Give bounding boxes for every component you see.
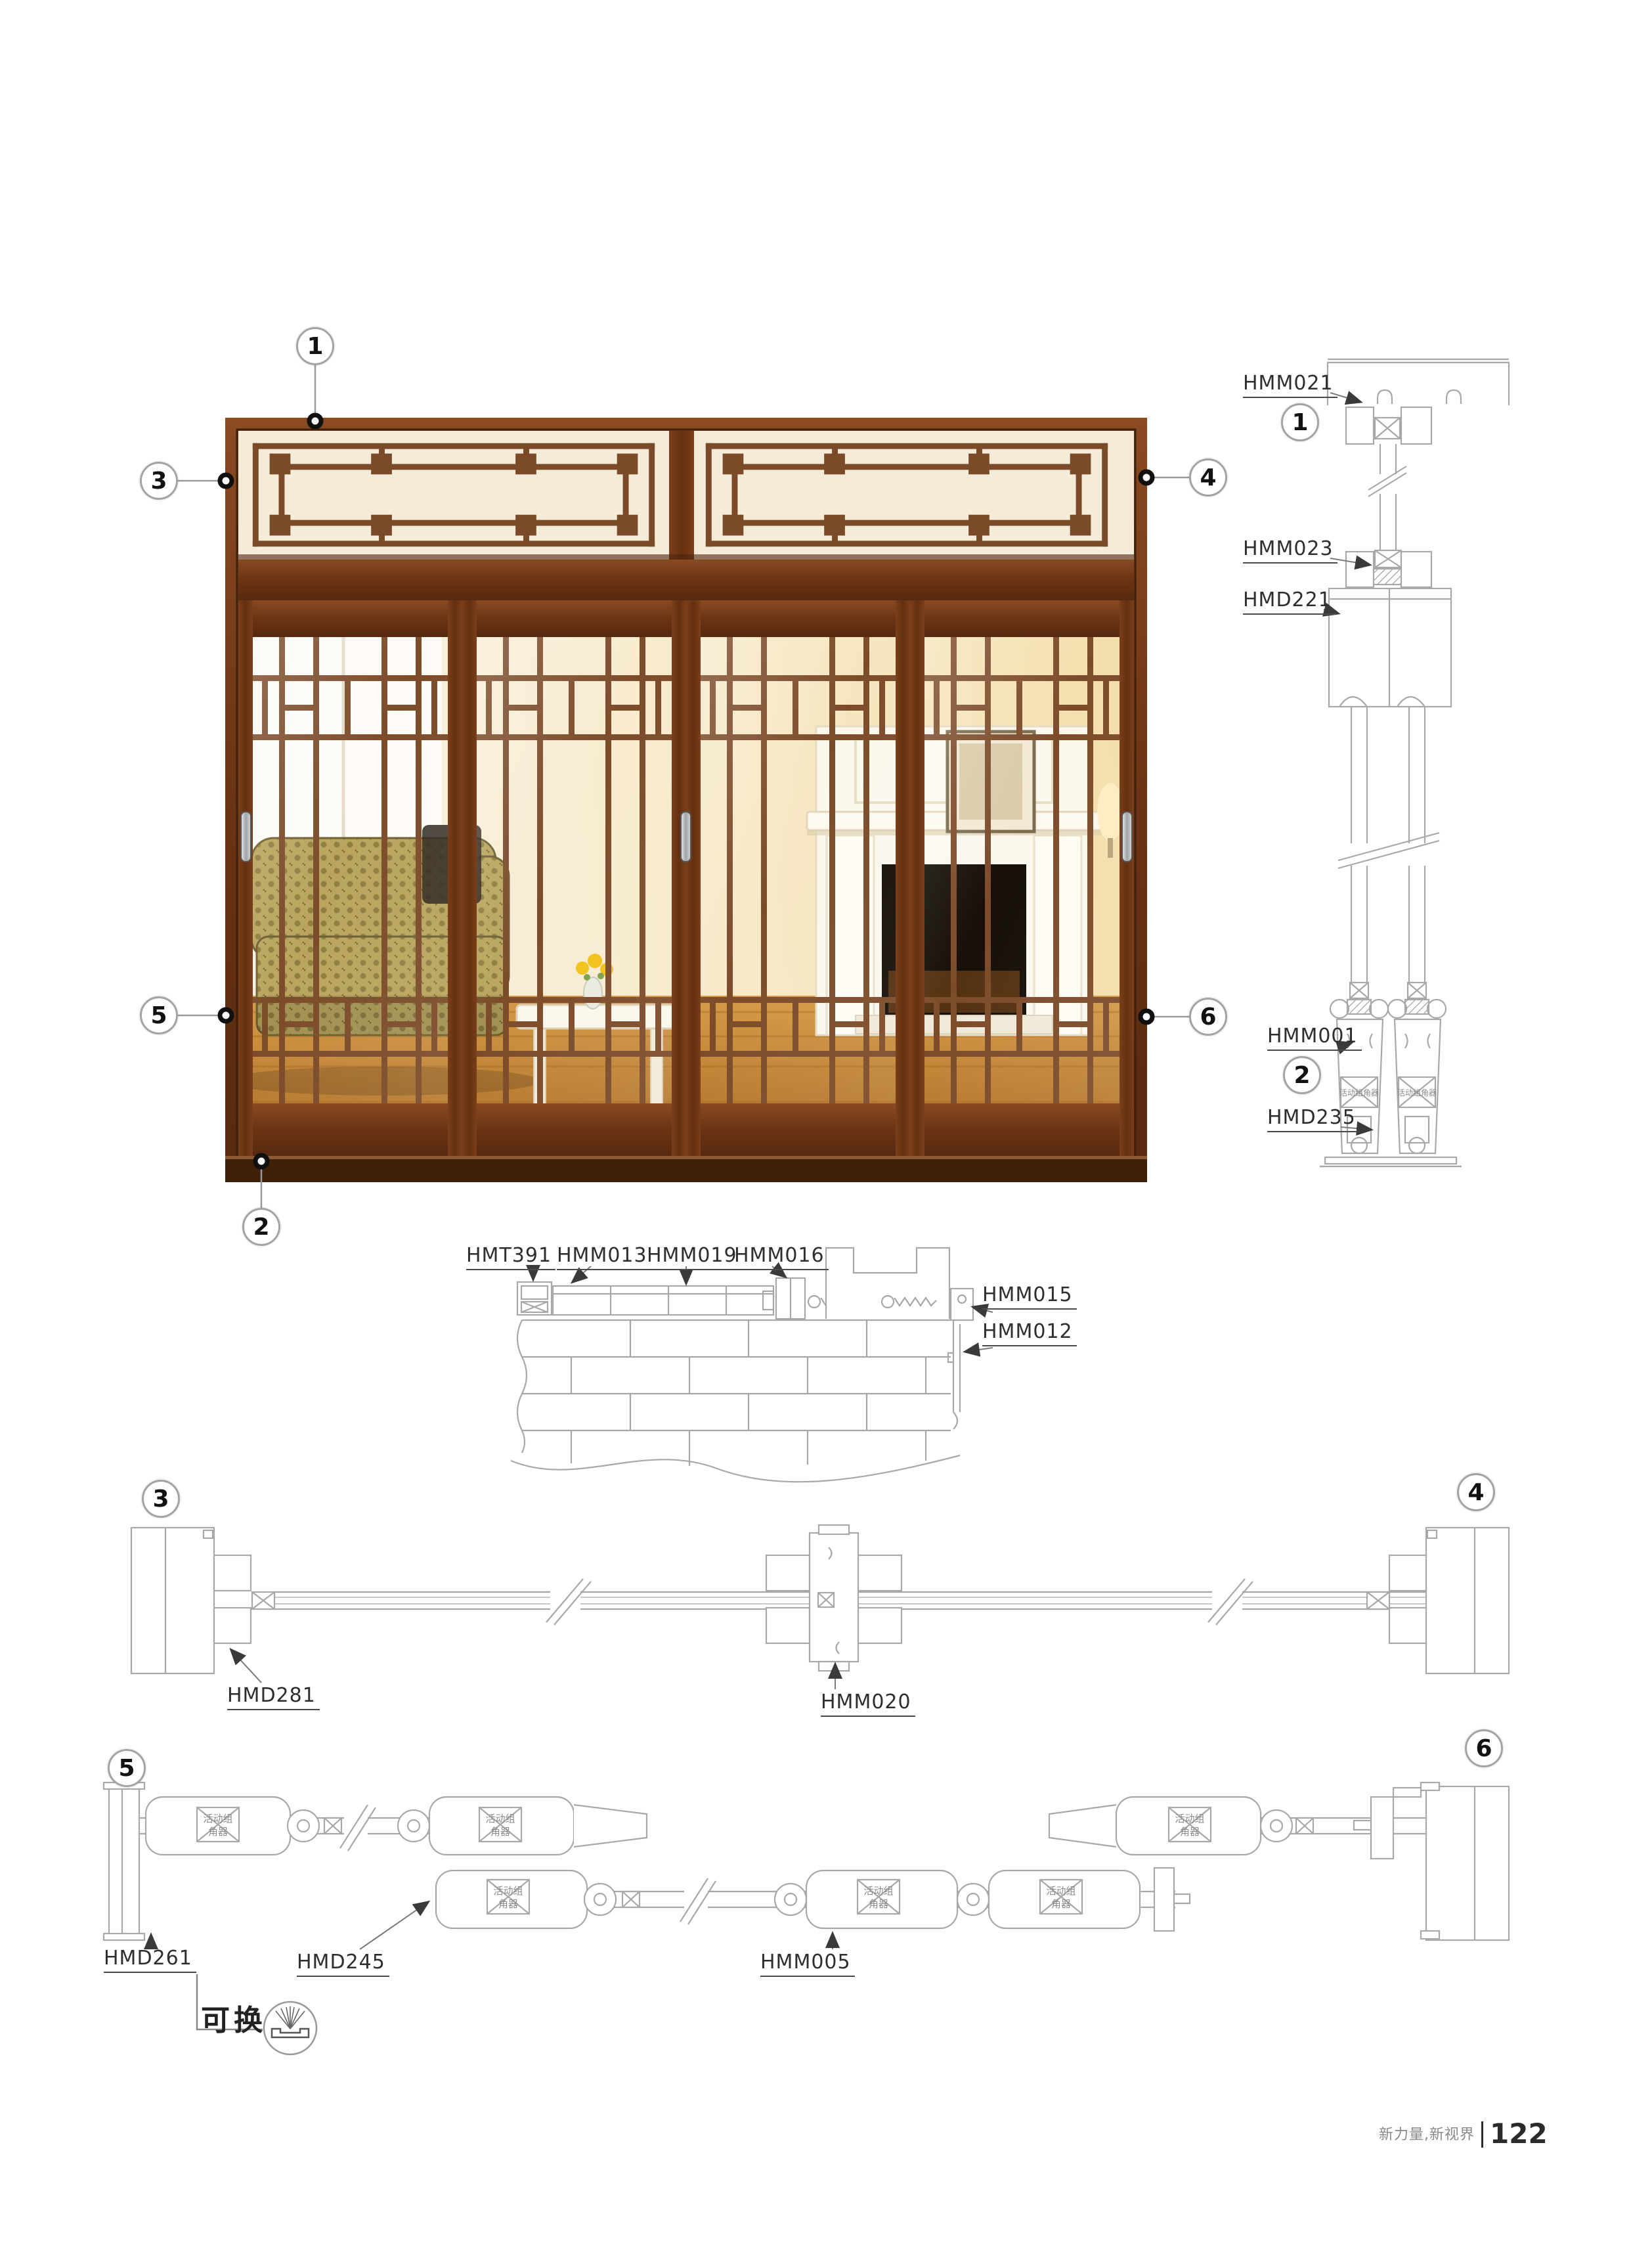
callout-number: 1: [307, 333, 323, 360]
technical-drawings: 活动组角器 活动组角器: [0, 0, 1652, 2258]
callout-number: 4: [1200, 464, 1216, 491]
callout-number: 1: [1292, 409, 1308, 436]
section-callout-3: 3: [142, 1480, 180, 1518]
photo-callout-1: 1: [296, 327, 334, 365]
corner-connector-text: 角器: [1051, 1898, 1071, 1910]
corner-connector-text: 角器: [208, 1826, 228, 1838]
part-label-hmd235: HMD235: [1267, 1107, 1360, 1132]
corner-connector-text: 活动组: [1175, 1813, 1204, 1825]
corner-connector-text: 角器: [490, 1826, 510, 1838]
catalog-page: 活动组角器 活动组角器: [0, 0, 1652, 2258]
part-label-hmm021: HMM021: [1243, 373, 1337, 398]
section-callout-1: 1: [1281, 403, 1319, 441]
corner-connector-text: 角器: [869, 1898, 888, 1910]
callout-number: 6: [1475, 1735, 1492, 1762]
callout-number: 3: [150, 468, 167, 495]
page-footer: 新力量,新视界 122: [1379, 2120, 1548, 2148]
corner-connector-text: 活动组: [203, 1813, 232, 1825]
section-callout-4: 4: [1457, 1473, 1495, 1511]
corner-connector-text: 活动组: [493, 1885, 523, 1897]
corner-connector-text: 角器: [498, 1898, 518, 1910]
callout-number: 4: [1467, 1479, 1484, 1506]
part-label-hmm001: HMM001: [1267, 1026, 1362, 1051]
corner-connector-text: 活动组: [863, 1885, 893, 1897]
callout-number: 2: [1293, 1062, 1310, 1089]
section-callout-5: 5: [108, 1749, 146, 1787]
corner-connector-text: 活动组角器: [1339, 1088, 1379, 1097]
footer-slogan: 新力量,新视界: [1379, 2123, 1475, 2148]
head-section-drawing: [511, 1248, 973, 1482]
leader-lines: [151, 393, 1371, 1949]
part-label-hmm023: HMM023: [1243, 539, 1337, 564]
part-label-hmd261: HMD261: [104, 1948, 196, 1973]
callout-number: 5: [150, 1002, 167, 1029]
part-label-hmm012: HMM012: [982, 1321, 1077, 1346]
part-label-hmd221: HMD221: [1243, 590, 1336, 615]
row34-section-drawing: [131, 1525, 1509, 1673]
part-label-hmm005: HMM005: [760, 1952, 855, 1977]
callout-number: 2: [253, 1214, 269, 1241]
part-label-hmm015: HMM015: [982, 1285, 1077, 1310]
corner-connector-text: 活动组: [1046, 1885, 1076, 1897]
callout-dots: [220, 415, 1152, 1167]
footer-page-number: 122: [1490, 2120, 1548, 2148]
part-label-hmm019: HMM019: [647, 1245, 741, 1270]
replaceable-label: 可换: [201, 1997, 267, 2039]
part-label-hmd245: HMD245: [297, 1952, 389, 1977]
callout-number: 5: [118, 1755, 135, 1782]
photo-callout-2: 2: [242, 1208, 280, 1246]
photo-callout-3: 3: [140, 462, 178, 500]
footer-divider: [1481, 2121, 1483, 2148]
corner-connector-text: 活动组角器: [1397, 1088, 1437, 1097]
section-callout-2: 2: [1283, 1056, 1321, 1094]
photo-callout-4: 4: [1189, 458, 1227, 497]
photo-callout-5: 5: [140, 996, 178, 1034]
corner-connector-text: 角器: [1180, 1826, 1200, 1838]
part-label-hmm016: HMM016: [734, 1245, 829, 1270]
corner-connector-text: 活动组: [485, 1813, 515, 1825]
part-label-hmm013: HMM013: [557, 1245, 651, 1270]
callout-stems: [178, 365, 1189, 1208]
callout-number: 3: [152, 1486, 169, 1513]
part-label-hmd281: HMD281: [227, 1685, 320, 1710]
part-label-hmt391: HMT391: [466, 1245, 555, 1270]
section-callout-6: 6: [1465, 1729, 1503, 1767]
photo-callout-6: 6: [1189, 998, 1227, 1036]
callout-number: 6: [1200, 1004, 1216, 1030]
row56-section-drawing: 活动组 角器 活动组 角器 活动组 角器 活动组 角器 活动组 角器 活动组 角…: [104, 1782, 1509, 1940]
part-label-hmm020: HMM020: [821, 1692, 915, 1717]
